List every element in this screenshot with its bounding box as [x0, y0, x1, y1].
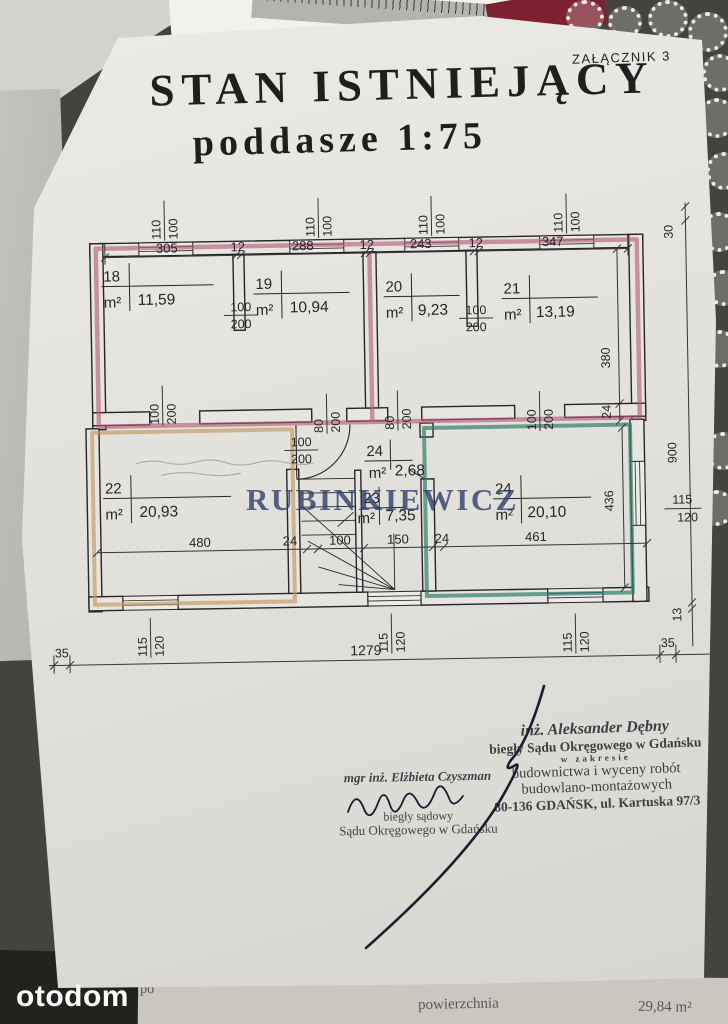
dim-label: 120	[394, 631, 408, 652]
dim-label: 200	[291, 452, 312, 466]
room-label-20: 20 m² 9,23	[383, 272, 460, 321]
dim-label: 200	[466, 320, 487, 334]
dim-label: 24	[283, 533, 298, 548]
dim-label: 80	[312, 419, 326, 433]
agency-watermark: RUBINKIEWICZ	[246, 482, 519, 518]
dim-label: 12	[468, 235, 483, 250]
otodom-logo: otodom	[16, 980, 129, 1014]
dim-label: 120	[578, 631, 592, 652]
dim-label: 480	[189, 535, 211, 550]
room-number: 22	[105, 480, 122, 497]
room-label-18: 18 m² 11,59	[101, 262, 214, 312]
dim-label: 100	[568, 211, 582, 232]
dim-label: 100	[525, 409, 539, 430]
dim-label: 110	[303, 217, 317, 237]
room-label-21: 21 m² 13,19	[501, 274, 598, 324]
dim-label: 12	[230, 239, 245, 254]
door-dim-labels: 100 200 100 200 100 200	[224, 296, 496, 468]
dim-label: 461	[525, 529, 547, 544]
room-label-24-small: 24 m² 2,68	[364, 439, 425, 482]
expert-stamp-left: mgr inż. Elżbieta Czyszman biegły sądowy…	[327, 768, 508, 839]
dim-label: 100	[148, 404, 162, 425]
dim-label: 24	[435, 531, 450, 546]
dim-label: 100	[320, 216, 334, 237]
dim-label: 200	[165, 403, 179, 424]
dim-label: 115	[672, 492, 692, 506]
dim-label: 110	[551, 213, 565, 233]
dim-label: 380	[599, 347, 613, 368]
dim-label: 120	[153, 636, 167, 657]
dim-label: 35	[661, 636, 675, 650]
room-number: 24	[366, 443, 383, 460]
room-number: 21	[503, 280, 520, 297]
dim-label: 24	[600, 405, 614, 419]
room-area: 11,59	[138, 291, 176, 309]
dim-label: 80	[383, 416, 397, 430]
room-number: 19	[255, 276, 272, 293]
dim-label: 200	[400, 408, 414, 429]
dim-label: 200	[329, 412, 343, 433]
signature-space	[328, 783, 508, 812]
room-unit: m²	[369, 465, 387, 482]
room-area: 10,94	[290, 299, 329, 317]
room-unit: m²	[104, 294, 122, 311]
dim-label: 100	[291, 435, 312, 449]
dim-label: 288	[292, 238, 314, 253]
dim-label: 12	[359, 237, 374, 252]
dim-label: 200	[542, 409, 556, 430]
dim-label: 100	[230, 300, 251, 314]
room-area: 20,10	[527, 504, 566, 522]
room-unit: m²	[504, 306, 522, 323]
dim-label: 100	[433, 214, 447, 235]
dim-label: 200	[231, 317, 252, 331]
dim-label: 110	[149, 220, 163, 240]
dim-label: 100	[166, 218, 180, 239]
room-area: 13,19	[536, 303, 575, 321]
room-unit: m²	[386, 304, 404, 321]
page-title: STAN ISTNIEJĄCY poddasze 1:75	[149, 51, 657, 166]
room-number: 18	[103, 268, 120, 285]
dim-label: 115	[561, 632, 575, 652]
dim-label: 35	[55, 646, 69, 660]
dim-label: 120	[677, 510, 698, 524]
room-label-22: 22 m² 20,93	[103, 473, 232, 523]
window-dim-labels: 110 100 110 100 110 100 110 100	[149, 193, 583, 241]
dim-label: 30	[661, 225, 675, 239]
room-area: 20,93	[139, 503, 178, 521]
dim-label: 243	[410, 236, 432, 251]
dim-label: 100	[329, 532, 351, 547]
room-unit: m²	[256, 302, 274, 319]
dim-label: 436	[602, 490, 616, 511]
room-label-19: 19 m² 10,94	[253, 269, 350, 319]
dim-label: 150	[387, 531, 409, 546]
room-number: 20	[385, 278, 402, 295]
dim-label: 115	[136, 637, 150, 657]
dim-label: 347	[542, 234, 564, 249]
dim-label: 13	[670, 608, 684, 622]
dim-label: 305	[156, 240, 178, 255]
dim-label: 900	[665, 442, 679, 463]
room-area: 2,68	[395, 462, 425, 480]
dim-label: 100	[465, 303, 486, 317]
room-area: 9,23	[418, 302, 448, 320]
photo-of-floorplan-document: po powierzchnia 29,84 m²	[0, 0, 728, 1024]
room-unit: m²	[105, 506, 123, 523]
dim-label: 110	[416, 215, 430, 235]
window-dim-labels: 115 120	[664, 492, 702, 525]
dim-label: 115	[377, 633, 391, 653]
